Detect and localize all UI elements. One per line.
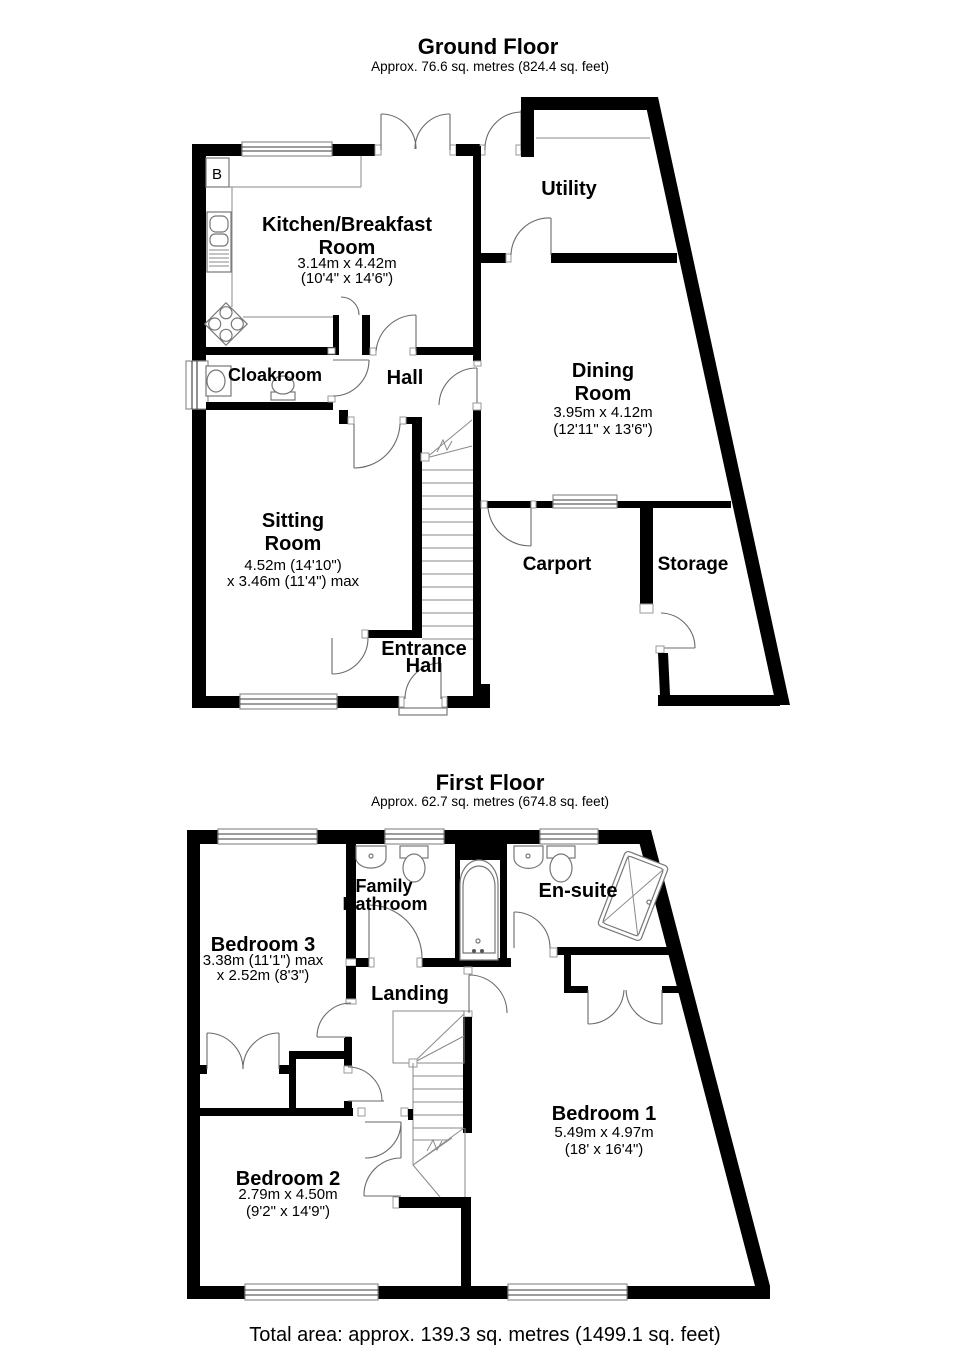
- svg-text:Family: Family: [355, 876, 412, 896]
- svg-text:x 3.46m (11'4") max: x 3.46m (11'4") max: [227, 573, 360, 590]
- svg-text:3.95m x 4.12m: 3.95m x 4.12m: [553, 404, 652, 421]
- svg-text:First Floor: First Floor: [436, 770, 545, 795]
- svg-text:Dining: Dining: [572, 360, 634, 382]
- svg-text:(9'2" x 14'9"): (9'2" x 14'9"): [246, 1203, 330, 1220]
- svg-text:Utility: Utility: [541, 178, 597, 200]
- svg-text:(18' x 16'4"): (18' x 16'4"): [565, 1141, 644, 1158]
- svg-text:Room: Room: [575, 383, 632, 405]
- svg-text:Cloakroom: Cloakroom: [228, 365, 322, 385]
- svg-text:5.49m x 4.97m: 5.49m x 4.97m: [554, 1124, 653, 1141]
- svg-text:4.52m (14'10"): 4.52m (14'10"): [244, 557, 341, 574]
- svg-text:Approx. 76.6 sq. metres (824.4: Approx. 76.6 sq. metres (824.4 sq. feet): [371, 59, 609, 74]
- svg-text:(12'11" x 13'6"): (12'11" x 13'6"): [553, 421, 653, 438]
- svg-text:Bedroom 1: Bedroom 1: [552, 1103, 656, 1125]
- svg-text:B: B: [212, 166, 222, 183]
- svg-text:Hall: Hall: [387, 367, 424, 389]
- svg-text:Sitting: Sitting: [262, 510, 324, 532]
- svg-text:Total area: approx. 139.3 sq.: Total area: approx. 139.3 sq. metres (14…: [249, 1324, 720, 1346]
- svg-text:Kitchen/Breakfast: Kitchen/Breakfast: [262, 214, 432, 236]
- svg-text:Hall: Hall: [406, 655, 443, 677]
- svg-text:(10'4" x 14'6"): (10'4" x 14'6"): [301, 270, 393, 287]
- svg-text:x 2.52m (8'3"): x 2.52m (8'3"): [217, 967, 309, 984]
- svg-text:Landing: Landing: [371, 983, 449, 1005]
- svg-text:Bathroom: Bathroom: [343, 894, 428, 914]
- svg-text:2.79m x 4.50m: 2.79m x 4.50m: [238, 1186, 337, 1203]
- svg-text:Carport: Carport: [523, 554, 592, 575]
- svg-text:Room: Room: [265, 533, 322, 555]
- svg-text:Ground Floor: Ground Floor: [418, 34, 559, 59]
- svg-text:Approx. 62.7 sq. metres (674.8: Approx. 62.7 sq. metres (674.8 sq. feet): [371, 794, 609, 809]
- svg-text:Storage: Storage: [658, 554, 729, 575]
- svg-text:En-suite: En-suite: [539, 880, 618, 902]
